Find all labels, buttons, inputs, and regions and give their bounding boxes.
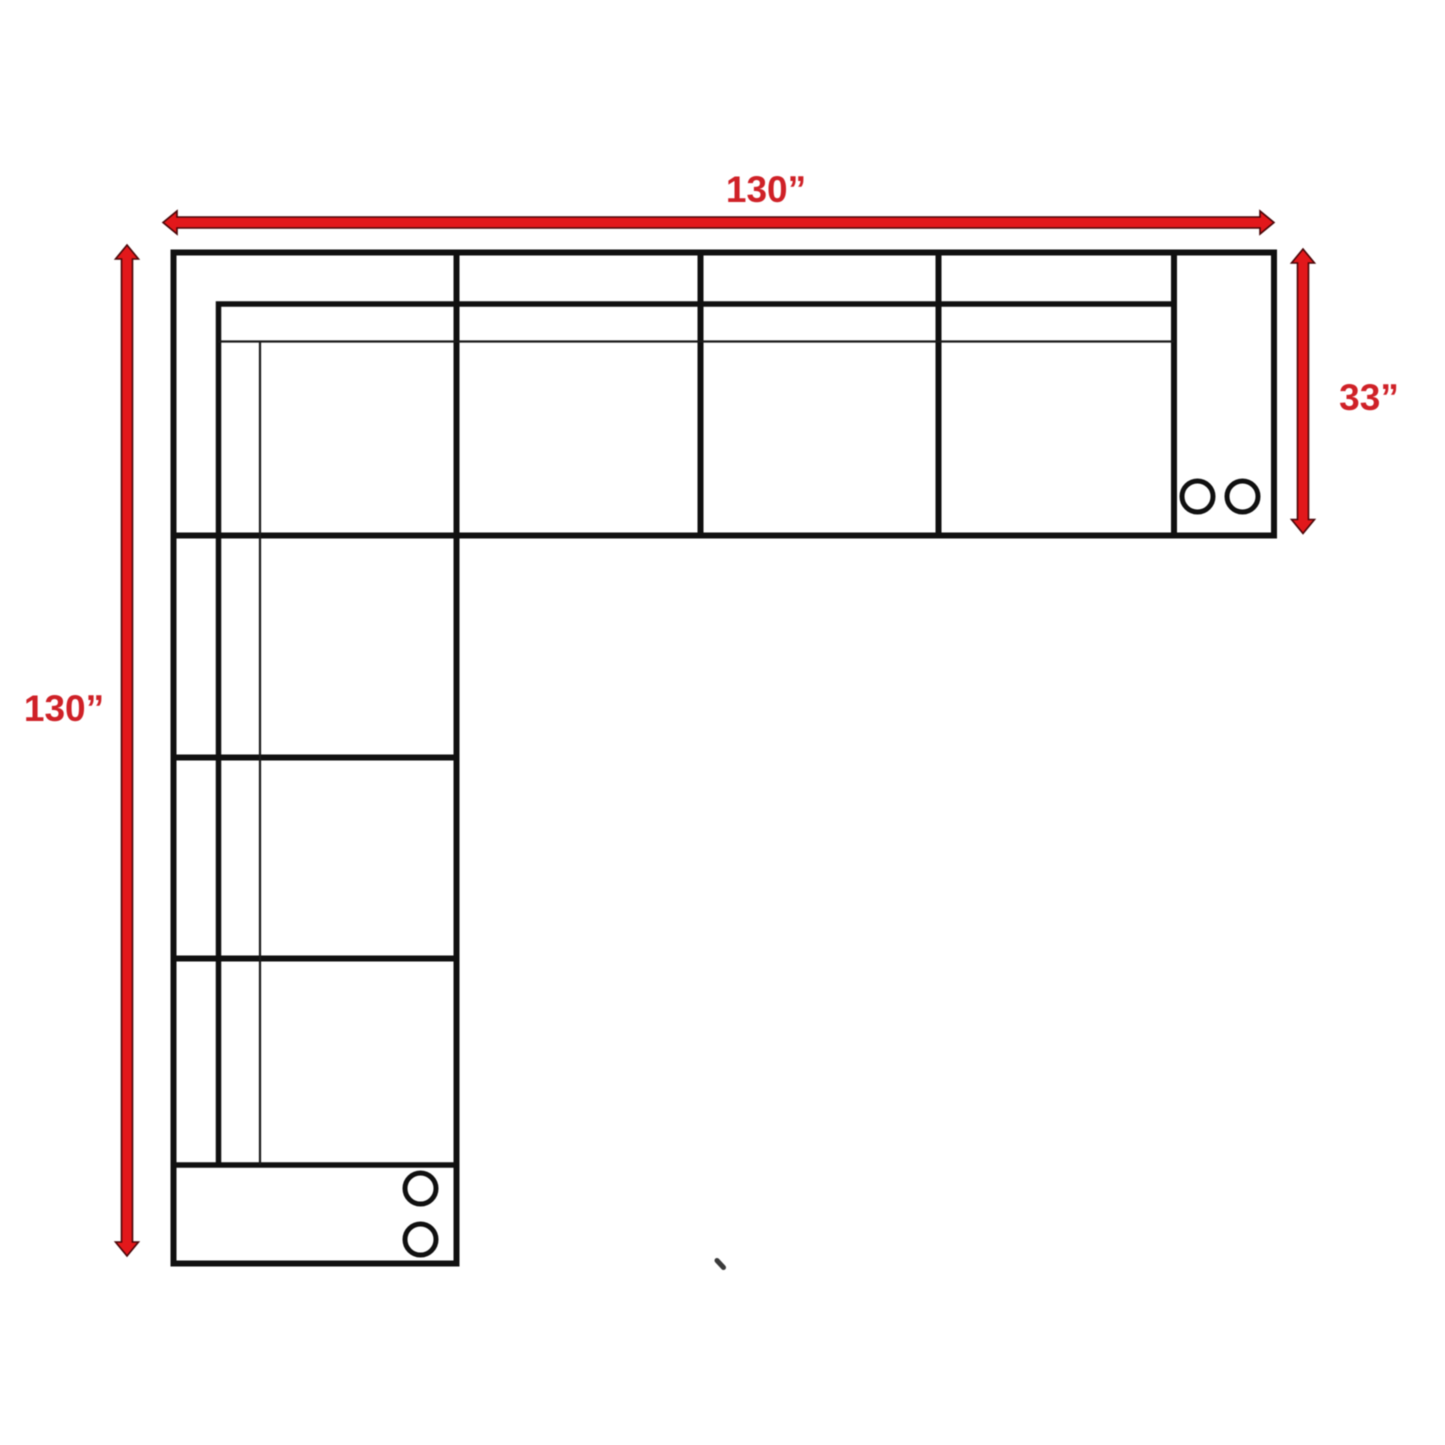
svg-text:130”: 130” [726, 169, 806, 210]
svg-text:130”: 130” [24, 688, 104, 729]
svg-text:33”: 33” [1339, 377, 1399, 418]
